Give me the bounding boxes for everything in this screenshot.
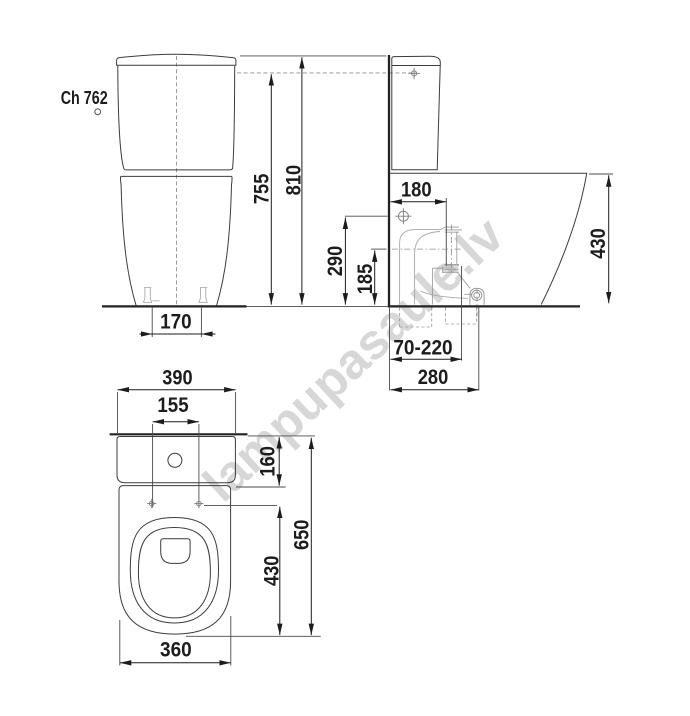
svg-text:170: 170 [160,309,192,333]
svg-text:280: 280 [418,365,449,389]
svg-text:290: 290 [323,246,347,277]
svg-text:155: 155 [157,393,188,417]
svg-text:430: 430 [586,228,610,259]
svg-text:lampupasaule.lv: lampupasaule.lv [192,206,514,512]
svg-text:70-220: 70-220 [393,335,452,359]
svg-text:430: 430 [260,556,284,587]
svg-text:390: 390 [162,366,192,390]
svg-text:180: 180 [401,177,432,201]
svg-text:810: 810 [282,165,306,196]
svg-text:160: 160 [256,446,280,477]
svg-text:755: 755 [250,174,274,205]
svg-text:185: 185 [353,264,377,295]
svg-text:650: 650 [290,520,314,551]
svg-text:Ch 762: Ch 762 [61,87,108,108]
svg-text:360: 360 [160,638,192,662]
